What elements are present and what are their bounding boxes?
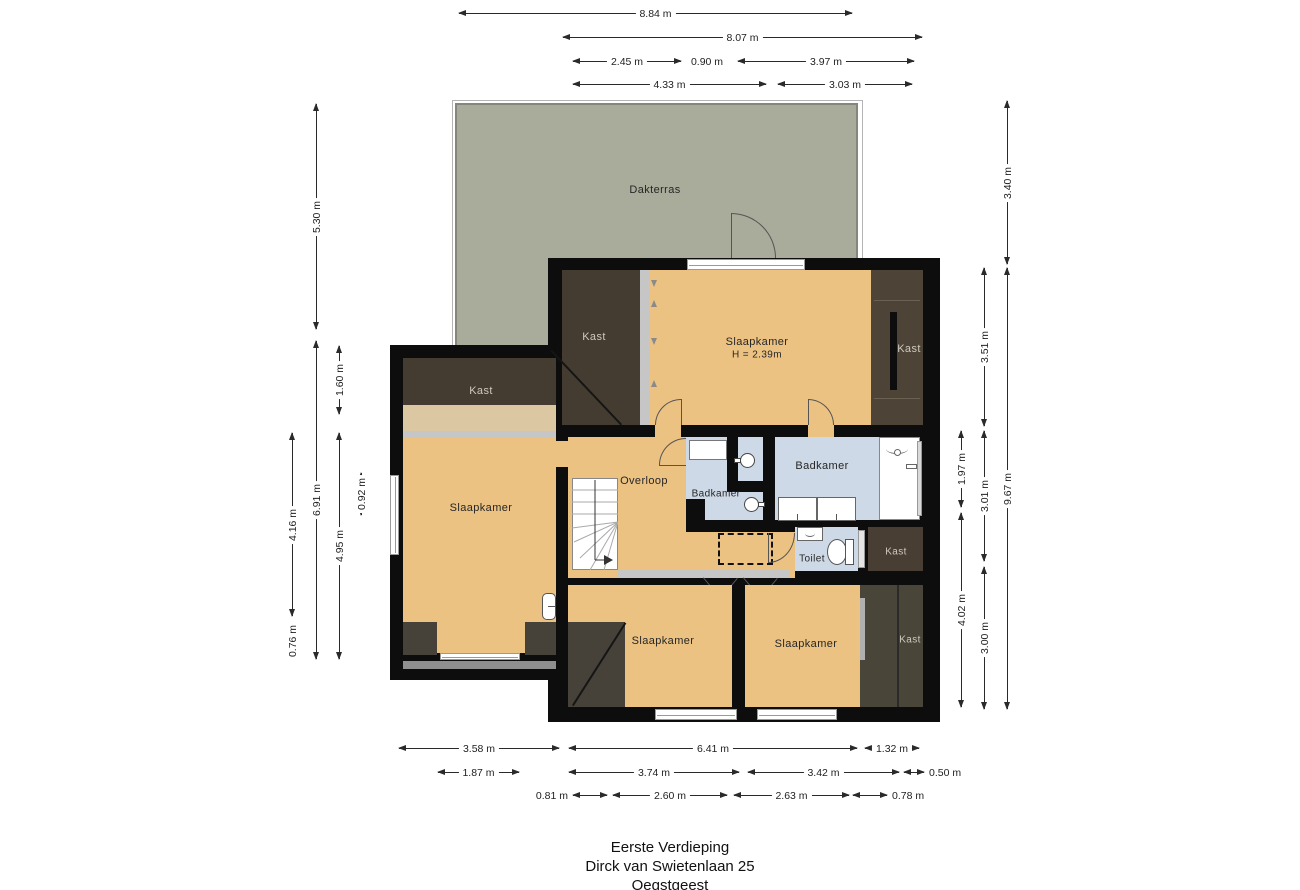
vanity-mark [836, 514, 837, 520]
dimension: 1.97 m [956, 430, 967, 508]
dimension-label: 2.60 m [650, 790, 690, 802]
door-leaf [659, 465, 686, 466]
dormer-band [403, 661, 556, 669]
vanity-mark [797, 514, 798, 520]
title-block: Eerste Verdieping Dirck van Swietenlaan … [520, 838, 820, 890]
dimension-label: 3.03 m [825, 79, 865, 91]
dimension-label: 0.90 m [687, 56, 727, 68]
closet-floor-wing [403, 358, 556, 405]
window [440, 653, 520, 660]
track-arrow-icon [651, 338, 657, 345]
dimension-label: 2.63 m [771, 790, 811, 802]
dimension-label: 4.16 m [287, 505, 299, 543]
window [390, 475, 399, 555]
room-label-toilet: Toilet [799, 554, 825, 565]
dimension: 1.87 m [437, 767, 520, 778]
toilet-bowl [827, 539, 847, 565]
title-floor: Eerste Verdieping [520, 838, 820, 857]
dimension-label: 6.41 m [693, 743, 733, 755]
shelf-line [874, 300, 920, 301]
dimension-label: 3.97 m [806, 56, 846, 68]
dimension-label: 1.97 m [956, 450, 968, 488]
closet-door-strip [860, 598, 865, 660]
dimension: 6.41 m [568, 743, 858, 754]
room-label-badkamer-large: Badkamer [795, 460, 848, 472]
dimension-label: 5.30 m [311, 197, 323, 235]
title-city: Oegstgeest [520, 876, 820, 890]
dimension: 8.07 m [562, 32, 923, 43]
room-label-slaapkamer-bottom-right: Slaapkamer [775, 638, 838, 650]
dimension-label: 1.87 m [458, 767, 498, 779]
shelf-line [874, 398, 920, 399]
room-label-badkamer-small: Badkamer [692, 489, 741, 500]
dimension-label: 4.33 m [649, 79, 689, 91]
washbasin-tap [548, 606, 556, 607]
room-label-slaapkamer-bottom-left: Slaapkamer [632, 635, 695, 647]
shower-door [917, 441, 922, 516]
door-opening [808, 425, 834, 437]
room-label-kast-mid-right: Kast [885, 547, 907, 558]
room-label-kast-top-right: Kast [897, 343, 921, 355]
toilet-sink-bowl [805, 530, 815, 537]
room-label-slaapkamer-wing: Slaapkamer [450, 502, 513, 514]
void-dashed-outline [718, 533, 773, 565]
track-arrow-icon [651, 280, 657, 287]
floor-plan-page: Dakterras Kast Slaapkamer H = 2.39m Kast… [0, 0, 1300, 890]
closet-front-strip [403, 405, 556, 431]
dimension: 3.97 m [737, 56, 915, 67]
dimension-label: 1.60 m [334, 361, 346, 399]
closet-rail [890, 312, 897, 390]
dimension: 3.74 m [568, 767, 740, 778]
room-label-slaapkamer-top: Slaapkamer [726, 336, 789, 348]
washbasin [740, 453, 755, 468]
washbasin-tap [758, 502, 765, 507]
corner-block [403, 622, 437, 655]
dimension-label: 3.74 m [634, 767, 674, 779]
staircase [572, 478, 618, 570]
dimension: 0.76 m [287, 622, 298, 660]
dimension: 1.60 m [334, 345, 345, 415]
closet-floor-bottom-right [860, 585, 923, 707]
dimension-label: 2.45 m [607, 56, 647, 68]
dimension-label: 8.07 m [722, 32, 762, 44]
room-label-kast-wing: Kast [469, 385, 493, 397]
door-opening [655, 425, 681, 437]
dimension: 3.40 m [1002, 100, 1013, 265]
dimension-label: 0.50 m [927, 767, 963, 779]
washbasin-tap [734, 458, 741, 463]
sliding-door-track [640, 270, 649, 425]
dimension: 4.02 m [956, 512, 967, 708]
room-label-kast-bottom-right: Kast [899, 635, 921, 646]
dimension-label: 0.78 m [890, 790, 926, 802]
room-label-slaapkamer-top-height: H = 2.39m [732, 350, 782, 361]
dimension-label: 3.01 m [979, 477, 991, 515]
dimension-label: 3.40 m [1002, 163, 1014, 201]
dimension-label: 3.00 m [979, 619, 991, 657]
dimension-label: 3.58 m [459, 743, 499, 755]
dimension: 2.63 m [733, 790, 850, 801]
dimension-label: 6.91 m [311, 481, 323, 519]
room-label-dakterras: Dakterras [629, 184, 680, 196]
dimension-label: 4.02 m [956, 591, 968, 629]
window [687, 259, 805, 270]
dimension-label: 3.42 m [803, 767, 843, 779]
track-arrow-icon [651, 380, 657, 387]
dimension: 4.95 m [334, 432, 345, 660]
dimension-label: 9.67 m [1002, 469, 1014, 507]
dimension: 3.03 m [777, 79, 913, 90]
closet-divider [897, 585, 899, 707]
dimension: 0.50 m [903, 767, 925, 778]
dimension: 3.51 m [979, 267, 990, 427]
dimension-label: 3.51 m [979, 328, 991, 366]
door-opening [556, 441, 568, 467]
title-address: Dirck van Swietenlaan 25 [520, 857, 820, 876]
dimension: 2.45 m [572, 56, 682, 67]
door-strip [858, 530, 865, 568]
dimension: 3.01 m [979, 430, 990, 562]
track-arrow-icon [651, 300, 657, 307]
dimension-label: 8.84 m [635, 8, 675, 20]
dimension: 8.84 m [458, 8, 853, 19]
bathroom-fixture [689, 440, 727, 460]
dimension: 0.81 m [572, 790, 608, 801]
floor-strip [437, 622, 525, 653]
sliding-door-track [403, 431, 556, 438]
shower-head-icon [894, 449, 901, 456]
dimension: 0.92 m [356, 472, 367, 516]
dimension-label: 0.81 m [534, 790, 570, 802]
dimension: 1.32 m [864, 743, 920, 754]
dimension: 0.78 m [852, 790, 888, 801]
toilet-tank [845, 539, 854, 565]
room-label-overloop: Overloop [620, 475, 668, 487]
wall-stub [686, 499, 705, 520]
dimension: 5.30 m [311, 103, 322, 330]
dimension: 4.33 m [572, 79, 767, 90]
dimension: 3.42 m [747, 767, 900, 778]
bedroom-floor-wing [403, 438, 556, 622]
dimension-label: 0.76 m [287, 622, 299, 660]
dimension-label: 0.92 m [356, 475, 368, 513]
door-leaf [681, 399, 682, 425]
shower-handle [906, 464, 917, 469]
dimension: 9.67 m [1002, 267, 1013, 710]
dimension: 0.90 m [687, 56, 727, 67]
dimension-label: 1.32 m [872, 743, 912, 755]
window [757, 709, 837, 720]
dimension: 3.58 m [398, 743, 560, 754]
dimension: 6.91 m [311, 340, 322, 660]
dimension: 4.16 m [287, 432, 298, 617]
room-label-kast-top-left: Kast [582, 331, 606, 343]
dimension-label: 4.95 m [334, 527, 346, 565]
corner-block [525, 622, 556, 655]
dimension: 2.60 m [612, 790, 728, 801]
dimension: 3.00 m [979, 566, 990, 710]
window [655, 709, 737, 720]
washbasin [744, 497, 759, 512]
